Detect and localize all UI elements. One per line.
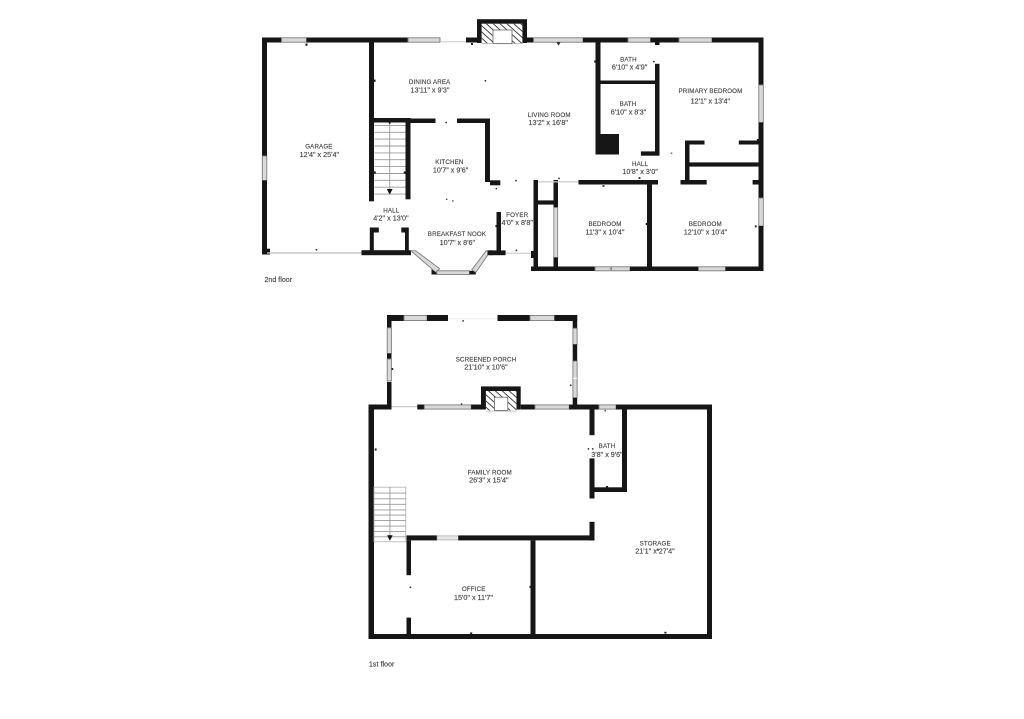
svg-text:PRIMARY BEDROOM: PRIMARY BEDROOM: [679, 88, 743, 95]
svg-text:15'0" x 11'7": 15'0" x 11'7": [454, 593, 493, 602]
svg-text:4'2" x 13'0": 4'2" x 13'0": [373, 213, 409, 222]
svg-text:10'7" x 9'6": 10'7" x 9'6": [433, 166, 469, 175]
svg-text:11'3" x 10'4": 11'3" x 10'4": [586, 228, 625, 237]
svg-text:2nd floor: 2nd floor: [265, 277, 293, 284]
svg-text:12'10" x 10'4": 12'10" x 10'4": [684, 228, 728, 237]
svg-text:6'10" x 8'3": 6'10" x 8'3": [611, 108, 647, 117]
svg-text:10'7" x 8'6": 10'7" x 8'6": [440, 238, 476, 247]
svg-text:4'0" x 8'8": 4'0" x 8'8": [501, 218, 533, 227]
svg-text:3'8" x 9'6": 3'8" x 9'6": [591, 450, 623, 459]
svg-text:21'10" x 10'6": 21'10" x 10'6": [464, 363, 508, 372]
svg-text:12'4" x 25'4": 12'4" x 25'4": [300, 150, 340, 159]
svg-text:13'11" x 9'3": 13'11" x 9'3": [411, 85, 450, 94]
svg-text:26'3" x 15'4": 26'3" x 15'4": [469, 476, 509, 485]
svg-text:10'8" x 3'0": 10'8" x 3'0": [622, 167, 658, 176]
svg-text:OFFICE: OFFICE: [462, 586, 486, 593]
svg-text:6'10" x 4'9": 6'10" x 4'9": [612, 63, 648, 72]
svg-text:1st floor: 1st floor: [369, 662, 395, 669]
svg-text:21'1" x 27'4": 21'1" x 27'4": [635, 547, 675, 556]
svg-text:13'2" x 16'8": 13'2" x 16'8": [528, 118, 568, 127]
svg-text:12'1" x 13'4": 12'1" x 13'4": [691, 96, 731, 105]
